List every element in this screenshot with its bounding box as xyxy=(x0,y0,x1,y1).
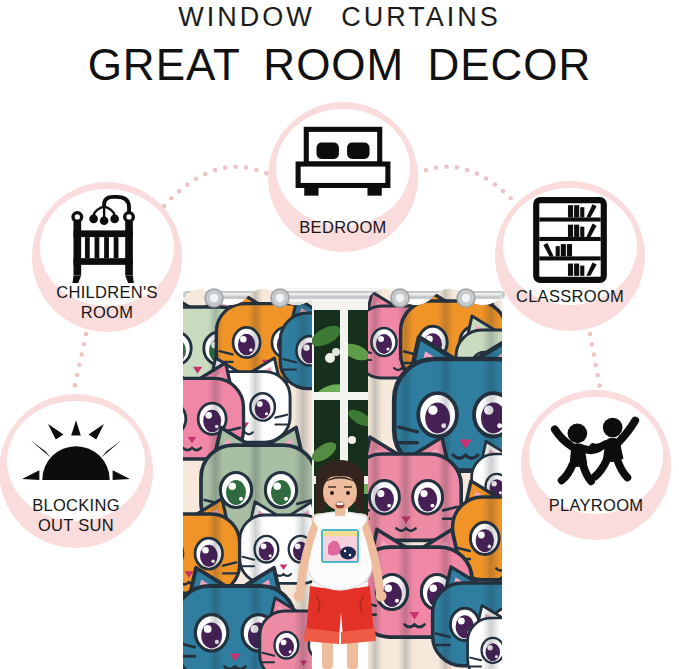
badge-bedroom-label: BEDROOM xyxy=(268,217,418,238)
badge-blocking-out-sun-label-line2: OUT SUN xyxy=(0,515,153,536)
shirt-print xyxy=(322,530,358,562)
badge-classroom: CLASSROOM xyxy=(495,181,645,331)
badge-childrens-room-label-line1: CHILDREN'S xyxy=(32,282,182,303)
badge-bedroom: BEDROOM xyxy=(268,102,418,252)
child-head xyxy=(316,460,364,512)
children-playing-icon xyxy=(547,412,645,488)
badge-childrens-room: CHILDREN'S ROOM xyxy=(32,182,182,332)
bookshelf-icon xyxy=(533,197,607,283)
child-shorts xyxy=(304,586,376,644)
crib-icon xyxy=(59,194,155,284)
product-photo xyxy=(0,0,679,669)
badge-blocking-out-sun: BLOCKING OUT SUN xyxy=(0,394,153,548)
bed-icon xyxy=(292,126,394,198)
badge-childrens-room-label-line2: ROOM xyxy=(32,302,182,323)
marketing-banner: WINDOW CURTAINS GREAT ROOM DECOR xyxy=(0,0,679,669)
badge-classroom-label: CLASSROOM xyxy=(495,286,645,307)
badge-playroom: PLAYROOM xyxy=(521,390,671,540)
sun-icon xyxy=(22,420,130,482)
badge-playroom-label: PLAYROOM xyxy=(521,495,671,516)
badge-blocking-out-sun-label-line1: BLOCKING xyxy=(0,495,153,516)
